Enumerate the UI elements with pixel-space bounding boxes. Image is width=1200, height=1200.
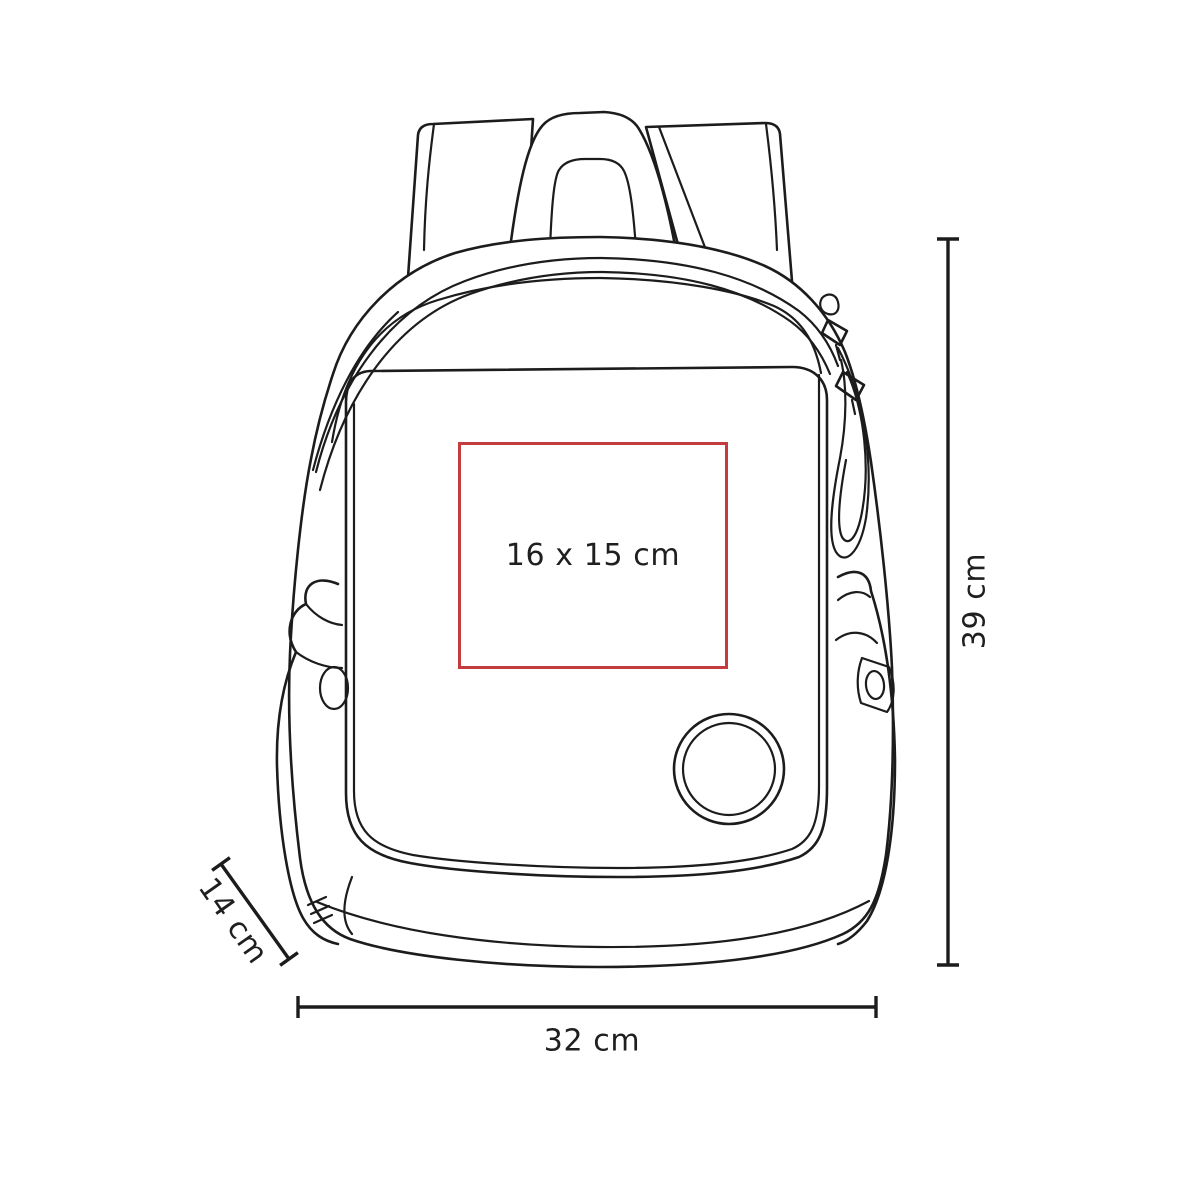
diagram-canvas: 16 x 15 cm 39 cm 32 cm 14 cm bbox=[0, 0, 1200, 1200]
height-dimension-line bbox=[937, 239, 959, 965]
print-area-label: 16 x 15 cm bbox=[506, 538, 680, 573]
height-dimension-label: 39 cm bbox=[958, 553, 993, 649]
width-dimension-line bbox=[298, 996, 876, 1018]
width-dimension-label: 32 cm bbox=[544, 1024, 640, 1059]
zipper-end-tab bbox=[820, 295, 838, 315]
print-area-box: 16 x 15 cm bbox=[458, 442, 728, 669]
